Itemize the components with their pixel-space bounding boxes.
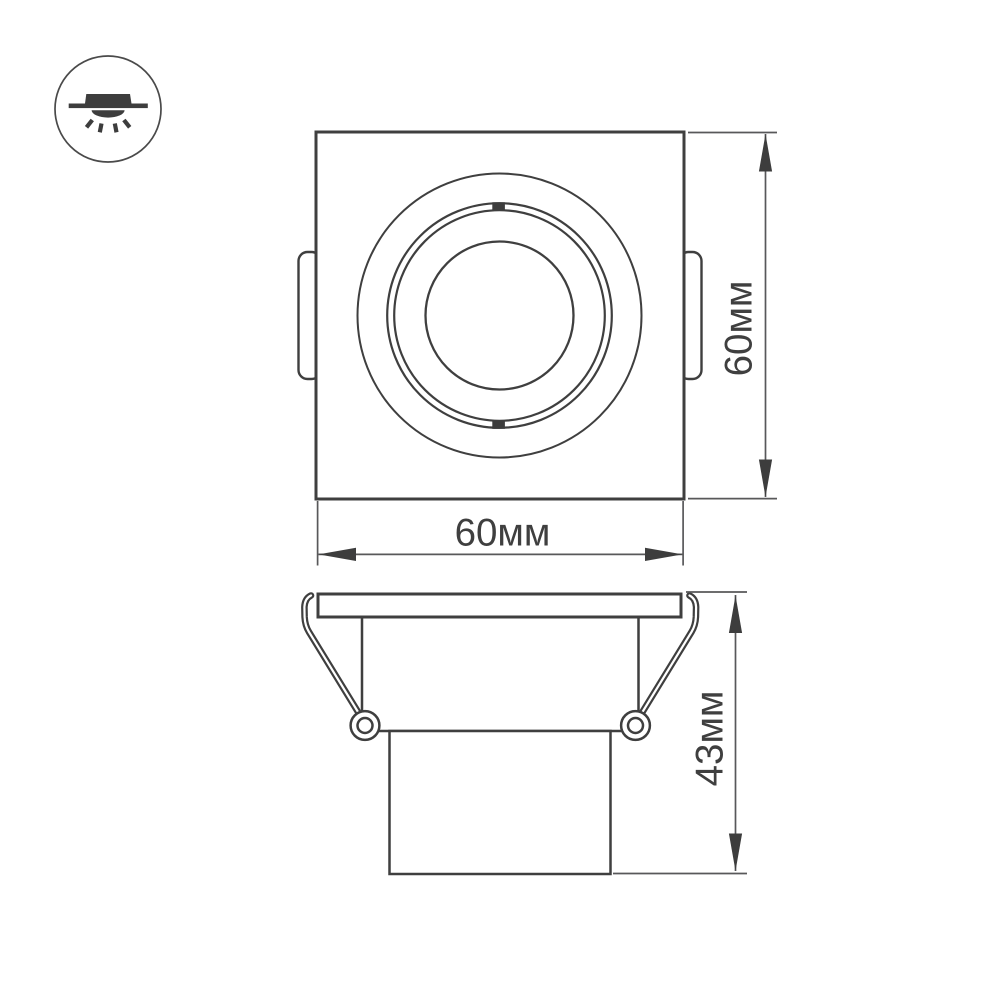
svg-text:60мм: 60мм	[455, 512, 551, 555]
svg-text:43мм: 43мм	[689, 691, 732, 787]
svg-text:60мм: 60мм	[718, 281, 761, 377]
